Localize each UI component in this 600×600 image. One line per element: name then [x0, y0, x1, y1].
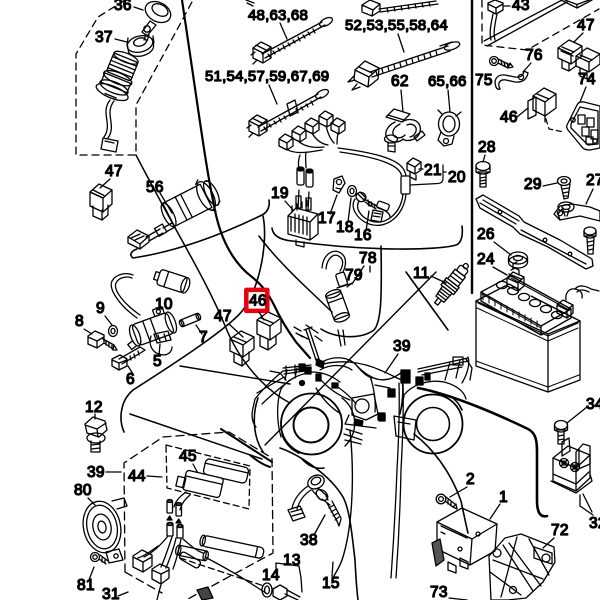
- svg-text:39: 39: [87, 464, 105, 481]
- svg-text:43: 43: [512, 0, 530, 14]
- svg-text:44: 44: [128, 468, 146, 485]
- svg-text:24: 24: [477, 251, 495, 268]
- svg-text:75: 75: [475, 72, 493, 89]
- svg-text:19: 19: [271, 185, 289, 202]
- svg-text:32: 32: [589, 515, 600, 532]
- svg-text:47: 47: [105, 163, 123, 180]
- svg-text:34: 34: [586, 396, 600, 413]
- svg-text:72: 72: [551, 522, 569, 539]
- svg-text:78: 78: [359, 250, 377, 267]
- svg-text:39: 39: [393, 338, 411, 355]
- svg-text:48,63,68: 48,63,68: [248, 7, 308, 24]
- svg-text:47: 47: [577, 17, 595, 34]
- svg-text:76: 76: [525, 47, 543, 64]
- svg-text:29: 29: [524, 176, 542, 193]
- svg-text:5: 5: [153, 353, 162, 370]
- svg-text:28: 28: [478, 139, 496, 156]
- svg-text:65,66: 65,66: [428, 73, 467, 90]
- svg-text:15: 15: [322, 575, 340, 592]
- svg-text:31: 31: [102, 586, 120, 600]
- svg-text:21: 21: [424, 162, 442, 179]
- svg-text:16: 16: [354, 227, 372, 244]
- svg-text:8: 8: [75, 313, 84, 330]
- svg-text:11: 11: [413, 265, 430, 282]
- svg-text:80: 80: [74, 482, 92, 499]
- svg-text:18: 18: [336, 219, 354, 236]
- svg-text:74: 74: [578, 71, 596, 88]
- svg-text:27: 27: [586, 172, 600, 189]
- svg-text:51,54,57,59,67,69: 51,54,57,59,67,69: [205, 68, 329, 85]
- svg-text:6: 6: [126, 371, 135, 388]
- svg-text:12: 12: [85, 399, 103, 416]
- svg-text:79: 79: [345, 267, 363, 284]
- svg-text:73: 73: [430, 584, 448, 600]
- svg-text:47: 47: [214, 308, 232, 325]
- svg-text:17: 17: [318, 210, 336, 227]
- svg-text:37: 37: [95, 29, 113, 46]
- svg-text:36: 36: [114, 0, 132, 14]
- svg-text:26: 26: [477, 226, 495, 243]
- svg-text:52,53,55,58,64: 52,53,55,58,64: [345, 17, 448, 34]
- svg-text:2: 2: [466, 471, 475, 488]
- svg-text:46: 46: [249, 293, 267, 310]
- svg-text:45: 45: [179, 448, 197, 465]
- svg-text:38: 38: [300, 532, 318, 549]
- svg-text:9: 9: [96, 300, 105, 317]
- svg-text:81: 81: [77, 577, 95, 594]
- svg-text:62: 62: [391, 73, 409, 90]
- svg-text:46: 46: [500, 109, 518, 126]
- svg-text:14: 14: [262, 567, 280, 584]
- svg-text:20: 20: [448, 169, 466, 186]
